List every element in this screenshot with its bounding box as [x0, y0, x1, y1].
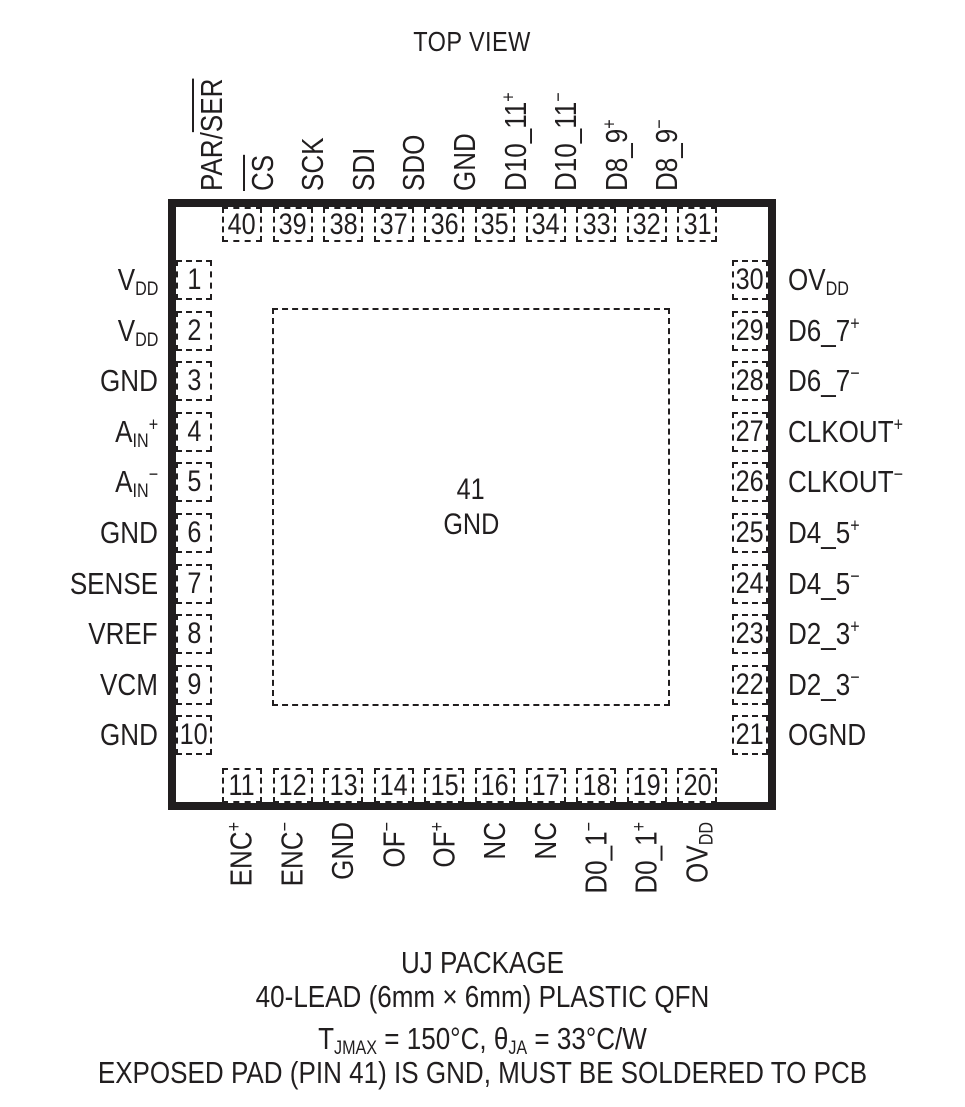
pin-28-box: 28: [732, 361, 768, 401]
pin-29-box: 29: [732, 311, 768, 351]
pin-39-number: 39: [279, 210, 307, 240]
pin-38-number: 38: [329, 210, 357, 240]
footer-note: EXPOSED PAD (PIN 41) IS GND, MUST BE SOL…: [77, 1056, 888, 1090]
pin-14-label: OF−: [379, 822, 409, 868]
pin-27-label: CLKOUT+: [788, 416, 903, 448]
pin-3-number: 3: [187, 366, 201, 396]
pin-31-box: 31: [677, 207, 717, 242]
qfn-pinout-figure: TOP VIEW 41 GND 40PAR/SER39CS38SCK37SDI3…: [0, 0, 965, 1107]
pin-13-box: 13: [323, 768, 363, 803]
pin-36-label: SDO: [399, 135, 429, 191]
pin-20-number: 20: [683, 771, 711, 801]
pin-38-box: 38: [323, 207, 363, 242]
pin-12-label: ENC−: [278, 822, 308, 886]
pin-9-number: 9: [187, 670, 201, 700]
pin-24-number: 24: [736, 569, 764, 599]
pin-17-number: 17: [532, 771, 560, 801]
pin-8-label: VREF: [89, 618, 158, 650]
pin-24-label: D4_5−: [788, 568, 860, 600]
pin-26-box: 26: [732, 462, 768, 502]
pin-5-label: AIN−: [115, 466, 158, 498]
pin-37-box: 37: [374, 207, 414, 242]
pin-6-number: 6: [187, 518, 201, 548]
pin-14-box: 14: [374, 768, 414, 803]
pin-35-number: 35: [481, 210, 509, 240]
pin-27-box: 27: [732, 412, 768, 452]
pin-23-number: 23: [736, 619, 764, 649]
pin-2-box: 2: [176, 311, 212, 351]
pin-18-box: 18: [576, 768, 616, 803]
exposed-pad-number: 41: [457, 472, 485, 507]
pin-37-number: 37: [380, 210, 408, 240]
pin-10-box: 10: [176, 715, 212, 755]
pin-7-box: 7: [176, 564, 212, 604]
pin-37-label: SDI: [349, 148, 379, 191]
pin-39-label: CS: [248, 155, 278, 191]
pin-33-label: D10_11−: [551, 92, 581, 191]
pin-31-number: 31: [683, 210, 711, 240]
pin-24-box: 24: [732, 564, 768, 604]
pin-29-number: 29: [736, 316, 764, 346]
pin-9-box: 9: [176, 665, 212, 705]
pin-19-label: D0_1+: [632, 822, 662, 894]
pin-40-box: 40: [222, 207, 262, 242]
pin-13-label: GND: [328, 822, 358, 880]
pin-2-number: 2: [187, 316, 201, 346]
pin-32-box: 32: [627, 207, 667, 242]
pin-34-label: D10_11+: [501, 92, 531, 191]
pin-10-number: 10: [180, 720, 208, 750]
pin-33-number: 33: [582, 210, 610, 240]
pin-17-label: NC: [531, 822, 561, 860]
pin-26-number: 26: [736, 467, 764, 497]
pin-13-number: 13: [329, 771, 357, 801]
pin-18-number: 18: [582, 771, 610, 801]
exposed-pad-label: GND: [443, 507, 499, 542]
pin-39-box: 39: [273, 207, 313, 242]
pin-3-box: 3: [176, 361, 212, 401]
pin-7-number: 7: [187, 569, 201, 599]
pin-17-box: 17: [526, 768, 566, 803]
pin-4-number: 4: [187, 417, 201, 447]
pin-28-number: 28: [736, 366, 764, 396]
pin-1-box: 1: [176, 260, 212, 300]
pin-15-box: 15: [424, 768, 464, 803]
exposed-pad: 41 GND: [272, 308, 670, 706]
pin-22-number: 22: [736, 670, 764, 700]
pin-34-number: 34: [532, 210, 560, 240]
pin-25-label: D4_5+: [788, 517, 860, 549]
pin-8-number: 8: [187, 619, 201, 649]
pin-25-box: 25: [732, 513, 768, 553]
pin-20-label: OVDD: [682, 822, 712, 883]
diagram-title: TOP VIEW: [217, 26, 728, 58]
pin-36-number: 36: [430, 210, 458, 240]
pin-31-label: D8_9−: [652, 119, 682, 191]
pin-15-label: OF+: [429, 822, 459, 868]
pin-16-number: 16: [481, 771, 509, 801]
pin-11-box: 11: [222, 768, 262, 803]
pin-21-box: 21: [732, 715, 768, 755]
pin-1-number: 1: [187, 265, 201, 295]
footer-package-name: UJ PACKAGE: [77, 946, 888, 980]
pin-21-number: 21: [736, 720, 764, 750]
pin-34-box: 34: [526, 207, 566, 242]
pin-19-box: 19: [627, 768, 667, 803]
pin-32-number: 32: [633, 210, 661, 240]
pin-19-number: 19: [633, 771, 661, 801]
pin-32-label: D8_9+: [602, 119, 632, 191]
pin-5-box: 5: [176, 462, 212, 502]
pin-12-box: 12: [273, 768, 313, 803]
pin-6-box: 6: [176, 513, 212, 553]
pin-1-label: VDD: [117, 264, 158, 296]
pin-7-label: SENSE: [70, 568, 158, 600]
pin-11-label: ENC+: [227, 822, 257, 886]
pin-6-label: GND: [100, 517, 158, 549]
pin-22-label: D2_3−: [788, 669, 860, 701]
pin-28-label: D6_7−: [788, 365, 860, 397]
pin-29-label: D6_7+: [788, 315, 860, 347]
pin-33-box: 33: [576, 207, 616, 242]
pin-30-box: 30: [732, 260, 768, 300]
pin-26-label: CLKOUT−: [788, 466, 903, 498]
pin-4-label: AIN+: [115, 416, 158, 448]
pin-23-label: D2_3+: [788, 618, 860, 650]
pin-12-number: 12: [279, 771, 307, 801]
pin-40-label: PAR/SER: [197, 79, 227, 191]
pin-36-box: 36: [424, 207, 464, 242]
pin-14-number: 14: [380, 771, 408, 801]
pin-18-label: D0_1−: [581, 822, 611, 894]
footer-thermal: TJMAX = 150°C, θJA = 33°C/W: [77, 1022, 888, 1056]
pin-27-number: 27: [736, 417, 764, 447]
pin-23-box: 23: [732, 614, 768, 654]
pin-20-box: 20: [677, 768, 717, 803]
pin-30-label: OVDD: [788, 264, 849, 296]
pin-30-number: 30: [736, 265, 764, 295]
footer-package-desc: 40-LEAD (6mm × 6mm) PLASTIC QFN: [77, 980, 888, 1014]
pin-35-box: 35: [475, 207, 515, 242]
pin-35-label: GND: [450, 133, 480, 191]
pin-22-box: 22: [732, 665, 768, 705]
pin-5-number: 5: [187, 467, 201, 497]
pin-38-label: SCK: [298, 137, 328, 191]
pin-9-label: VCM: [100, 669, 158, 701]
pin-2-label: VDD: [117, 315, 158, 347]
pin-21-label: OGND: [788, 719, 866, 751]
pin-25-number: 25: [736, 518, 764, 548]
pin-16-box: 16: [475, 768, 515, 803]
pin-4-box: 4: [176, 412, 212, 452]
pin-8-box: 8: [176, 614, 212, 654]
pin-11-number: 11: [229, 771, 255, 801]
pin-3-label: GND: [100, 365, 158, 397]
pin-15-number: 15: [430, 771, 458, 801]
pin-16-label: NC: [480, 822, 510, 860]
pin-40-number: 40: [228, 210, 256, 240]
pin-10-label: GND: [100, 719, 158, 751]
